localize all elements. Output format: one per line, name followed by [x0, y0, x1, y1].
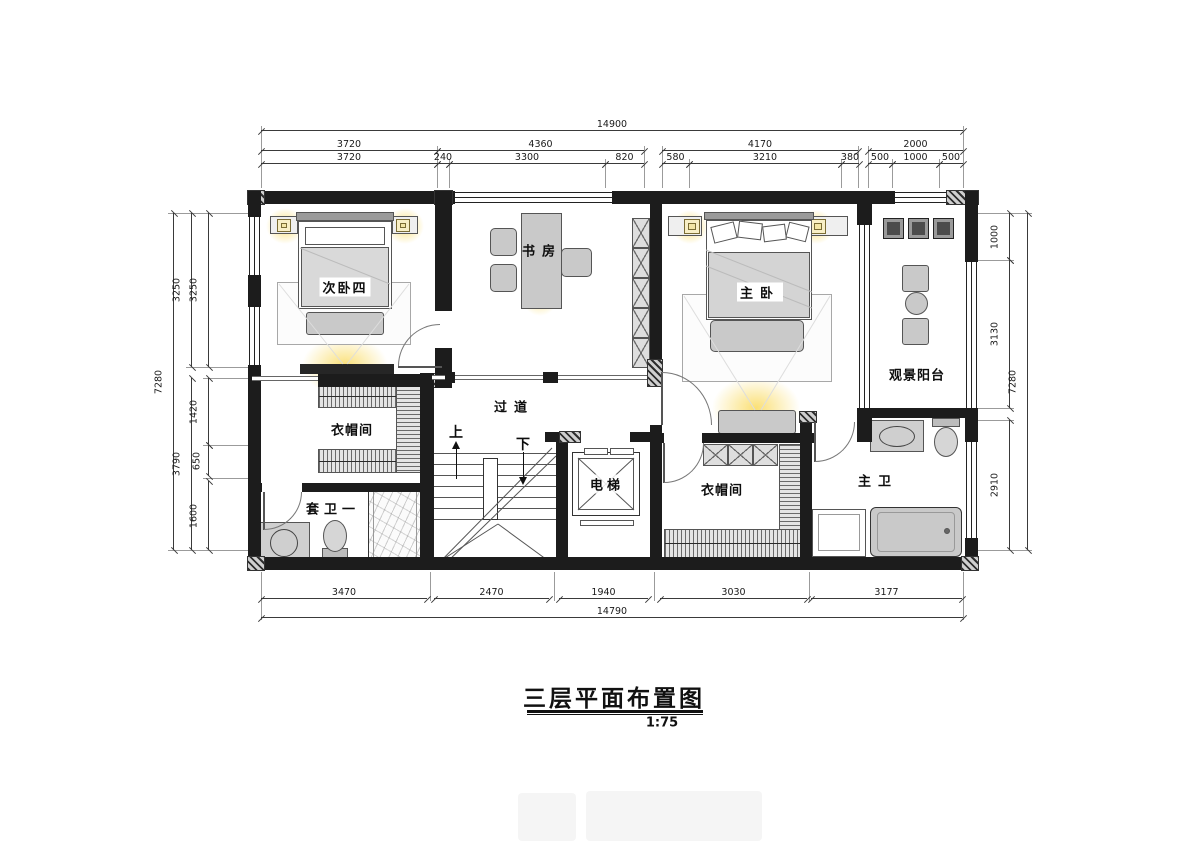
left-wall: [248, 365, 261, 570]
balcony-table: [905, 292, 928, 315]
dim-right-in-0: 1000: [1009, 213, 1010, 260]
dim-top-r3-2: 3300: [449, 163, 605, 164]
potted-plant-icon: [933, 218, 954, 239]
bottom-wall: [248, 557, 978, 570]
dim-bottom-3: 3030: [660, 598, 807, 599]
arrow-stem: [456, 449, 457, 479]
dim-top-r3-4: 580: [662, 163, 689, 164]
bed-headboard: [704, 212, 814, 220]
column: [445, 372, 455, 383]
dim-top-r3-6: 380: [841, 163, 859, 164]
dim-label: 2470: [479, 587, 503, 598]
left-wall: [248, 275, 261, 307]
arrow-stem: [523, 452, 524, 478]
door-leaf: [398, 366, 442, 368]
extension-line: [963, 126, 964, 188]
interior-wall: [435, 191, 452, 311]
shower-tray: [373, 489, 417, 561]
room-label-study: 书房: [522, 241, 562, 260]
bed-bench: [710, 320, 804, 352]
shoe-rack-hatch: [396, 385, 423, 473]
wardrobe-rod: [319, 461, 397, 462]
dim-label: 3250: [171, 278, 182, 302]
wardrobe-rod: [319, 396, 397, 397]
floor-transition-line: [432, 375, 650, 380]
window: [966, 442, 977, 538]
dresser: [718, 410, 796, 434]
dim-label: 3720: [337, 152, 361, 163]
potted-plant-icon: [908, 218, 929, 239]
wall-pier-hatched: [800, 412, 816, 422]
dim-label: 14900: [597, 119, 627, 130]
dim-label: 7280: [153, 369, 164, 393]
window: [859, 225, 870, 408]
cabinet-x-cell: [703, 444, 728, 466]
elevator-door: [610, 448, 634, 455]
toilet-bowl: [934, 427, 958, 457]
bookcase-cell: [632, 278, 650, 308]
dim-top-r2-3: 2000: [868, 150, 963, 151]
interior-wall: [302, 483, 424, 492]
stair-stringer: [483, 458, 498, 520]
top-wall: [248, 191, 455, 204]
room-label-balcony: 观景阳台: [889, 365, 945, 384]
bookcase-cell: [632, 218, 650, 248]
dim-top-r2-2: 4170: [662, 150, 858, 151]
dim-top-r3-8: 1000: [892, 163, 939, 164]
wall-pier-hatched: [560, 432, 580, 442]
wall-pier-hatched: [248, 557, 264, 570]
bed-headboard: [296, 212, 394, 221]
window: [455, 192, 612, 203]
bookcase-cell: [632, 248, 650, 278]
dim-top-r3-3: 820: [605, 163, 644, 164]
dim-label: 4360: [528, 139, 552, 150]
room-label-closet-right: 衣帽间: [701, 480, 743, 499]
shower-tray-inner: [818, 514, 860, 551]
elevator-shaft-wall: [545, 432, 560, 442]
sink-basin: [270, 529, 298, 557]
dim-left-overall: 7280: [173, 213, 174, 550]
dim-bottom-overall: 14790: [261, 617, 963, 618]
floor-plan-canvas: 14900 3720 4360 4170 2000 3720 240 3300 …: [0, 0, 1200, 842]
balcony-wall: [857, 191, 872, 225]
dim-label: 4170: [748, 139, 772, 150]
extension-line: [186, 367, 248, 368]
dim-label: 500: [871, 152, 889, 163]
potted-plant-icon: [883, 218, 904, 239]
dim-label: 3130: [989, 322, 1000, 346]
table-lamp-icon: [396, 219, 410, 232]
pillow: [762, 224, 787, 243]
room-label-ensuite-bath1: 套卫一: [306, 499, 360, 518]
dim-label: 650: [191, 451, 202, 469]
dim-top-r3-7: 500: [868, 163, 892, 164]
elevator-sill: [580, 520, 634, 526]
table-lamp-icon: [277, 219, 291, 232]
interior-wall: [857, 408, 965, 418]
interior-wall: [800, 412, 812, 570]
door-arc: [664, 443, 704, 483]
left-wall: [248, 191, 261, 217]
cabinet-x-cell: [753, 444, 778, 466]
dim-label: 3720: [337, 139, 361, 150]
room-label-corridor: 过道: [494, 397, 534, 416]
dim-label: 3300: [515, 152, 539, 163]
dim-top-overall: 14900: [261, 130, 963, 131]
dim-label: 1600: [188, 503, 199, 527]
dim-label: 1940: [591, 587, 615, 598]
watermark: [586, 791, 762, 841]
pillow: [737, 221, 763, 241]
floor-plan-title: 三层平面布置图: [523, 679, 705, 713]
extension-line: [261, 572, 262, 620]
sink-basin: [879, 426, 915, 447]
balcony-chair: [902, 265, 929, 292]
elevator-shaft-wall: [650, 442, 662, 570]
room-label-bedroom4: 次卧四: [319, 278, 370, 297]
dim-label: 3790: [171, 452, 182, 476]
wall-pier-hatched: [648, 360, 662, 386]
dim-label: 240: [434, 152, 452, 163]
interior-wall: [650, 191, 662, 372]
dim-right-overall: 7280: [1027, 213, 1028, 550]
wall-pier-hatched: [962, 557, 978, 570]
dim-top-r3-5: 3210: [689, 163, 841, 164]
room-label-master-bedroom: 主卧: [737, 283, 783, 302]
toilet-bowl: [323, 520, 347, 552]
dim-label: 820: [615, 152, 633, 163]
desk: [521, 213, 562, 309]
elevator-shaft-wall: [556, 432, 568, 570]
dim-label: 1000: [989, 224, 1000, 248]
dim-left-in-1: 1420: [208, 378, 209, 445]
dim-top-r3-1: 240: [437, 163, 449, 164]
bed-bench: [306, 312, 384, 335]
right-wall: [965, 408, 978, 442]
watermark: [518, 793, 576, 841]
dim-right-in-2: 2910: [1009, 420, 1010, 550]
elevator-door: [584, 448, 608, 455]
dim-label: 3250: [188, 278, 199, 302]
floor-transition-line: [252, 376, 318, 381]
title-underline: [527, 710, 703, 713]
column: [543, 372, 558, 383]
extension-line: [654, 572, 655, 601]
dim-bottom-0: 3470: [261, 598, 427, 599]
dim-label: 1000: [903, 152, 927, 163]
bed-pillows: [305, 227, 385, 245]
dim-top-r2-1: 4360: [437, 150, 644, 151]
extension-line: [261, 126, 262, 188]
chair: [490, 264, 517, 292]
bookcase-cell: [632, 308, 650, 338]
dim-top-r2-0: 3720: [261, 150, 437, 151]
room-label-closet-left: 衣帽间: [331, 420, 373, 439]
dim-label: 14790: [597, 606, 627, 617]
window: [966, 262, 977, 408]
dim-label: 1420: [188, 399, 199, 423]
room-label-master-bath: 主卫: [858, 471, 898, 490]
table-lamp-icon: [810, 219, 826, 234]
dim-top-r3-0: 3720: [261, 163, 437, 164]
window: [249, 307, 260, 365]
interior-wall: [702, 433, 815, 443]
wardrobe-rod: [665, 543, 801, 544]
bathtub-drain: [944, 528, 950, 534]
window: [249, 217, 260, 275]
door-arc: [815, 422, 855, 462]
right-wall: [965, 191, 978, 262]
dim-left-in-3: 1600: [208, 481, 209, 550]
cabinet-x-cell: [728, 444, 753, 466]
balcony-chair: [902, 318, 929, 345]
dim-label: 2000: [903, 139, 927, 150]
stair-down-label: 下: [516, 434, 532, 454]
dim-label: 3177: [874, 587, 898, 598]
dim-bottom-1: 2470: [434, 598, 549, 599]
up-arrow-icon: [452, 441, 460, 449]
interior-wall: [252, 483, 262, 492]
dim-left-in-0: 3250: [208, 213, 209, 367]
down-arrow-icon: [519, 477, 527, 485]
dim-left-in-2: 650: [208, 445, 209, 476]
tv-cabinet: [300, 364, 394, 374]
extension-line: [978, 213, 1032, 214]
dim-label: 7280: [1007, 369, 1018, 393]
dim-label: 3210: [753, 152, 777, 163]
dim-label: 3470: [332, 587, 356, 598]
dim-label: 500: [942, 152, 960, 163]
extension-line: [978, 550, 1032, 551]
desk-chair: [561, 248, 592, 277]
dim-bottom-4: 3177: [811, 598, 962, 599]
chair: [490, 228, 517, 256]
window: [895, 192, 947, 203]
interior-wall: [652, 433, 664, 443]
dim-label: 3030: [721, 587, 745, 598]
dim-bottom-2: 1940: [559, 598, 648, 599]
dim-top-r3-9: 500: [939, 163, 963, 164]
table-lamp-icon: [684, 219, 700, 234]
room-label-elevator: 电梯: [588, 475, 626, 494]
interior-wall: [420, 373, 434, 570]
stair-up-label: 上: [449, 422, 465, 442]
dim-label: 380: [841, 152, 859, 163]
dim-label: 2910: [989, 473, 1000, 497]
scale-label: 1:75: [646, 716, 678, 731]
extension-line: [554, 572, 555, 601]
toilet-tank: [932, 418, 960, 427]
dim-label: 580: [666, 152, 684, 163]
